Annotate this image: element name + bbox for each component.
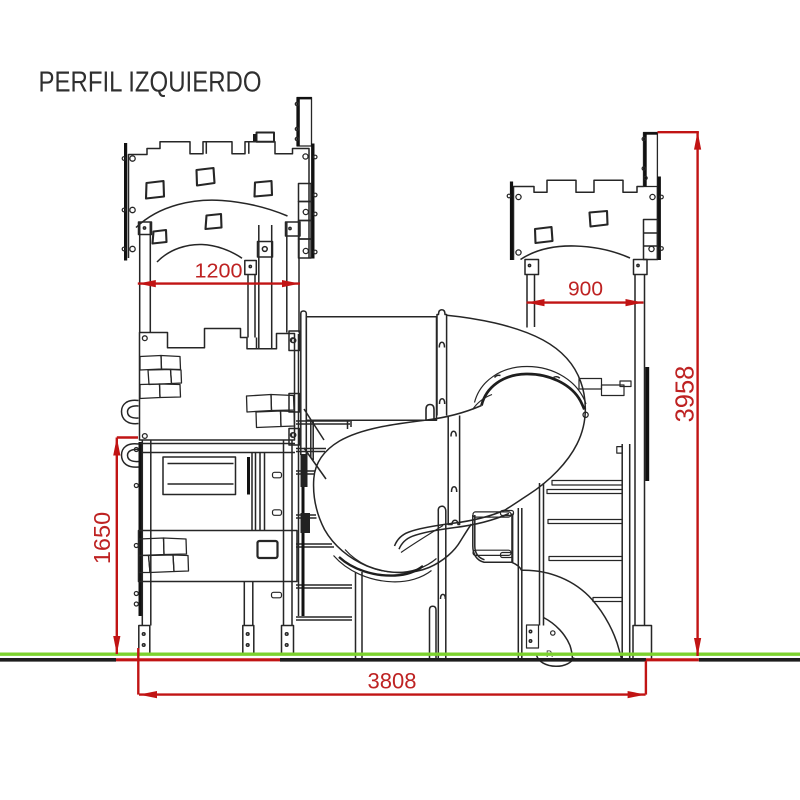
svg-text:3808: 3808 xyxy=(368,669,417,694)
svg-text:3958: 3958 xyxy=(672,366,700,423)
svg-text:PERFIL IZQUIERDO: PERFIL IZQUIERDO xyxy=(39,67,262,99)
svg-text:1650: 1650 xyxy=(89,512,115,564)
svg-text:1200: 1200 xyxy=(195,261,243,283)
svg-text:900: 900 xyxy=(568,278,603,301)
